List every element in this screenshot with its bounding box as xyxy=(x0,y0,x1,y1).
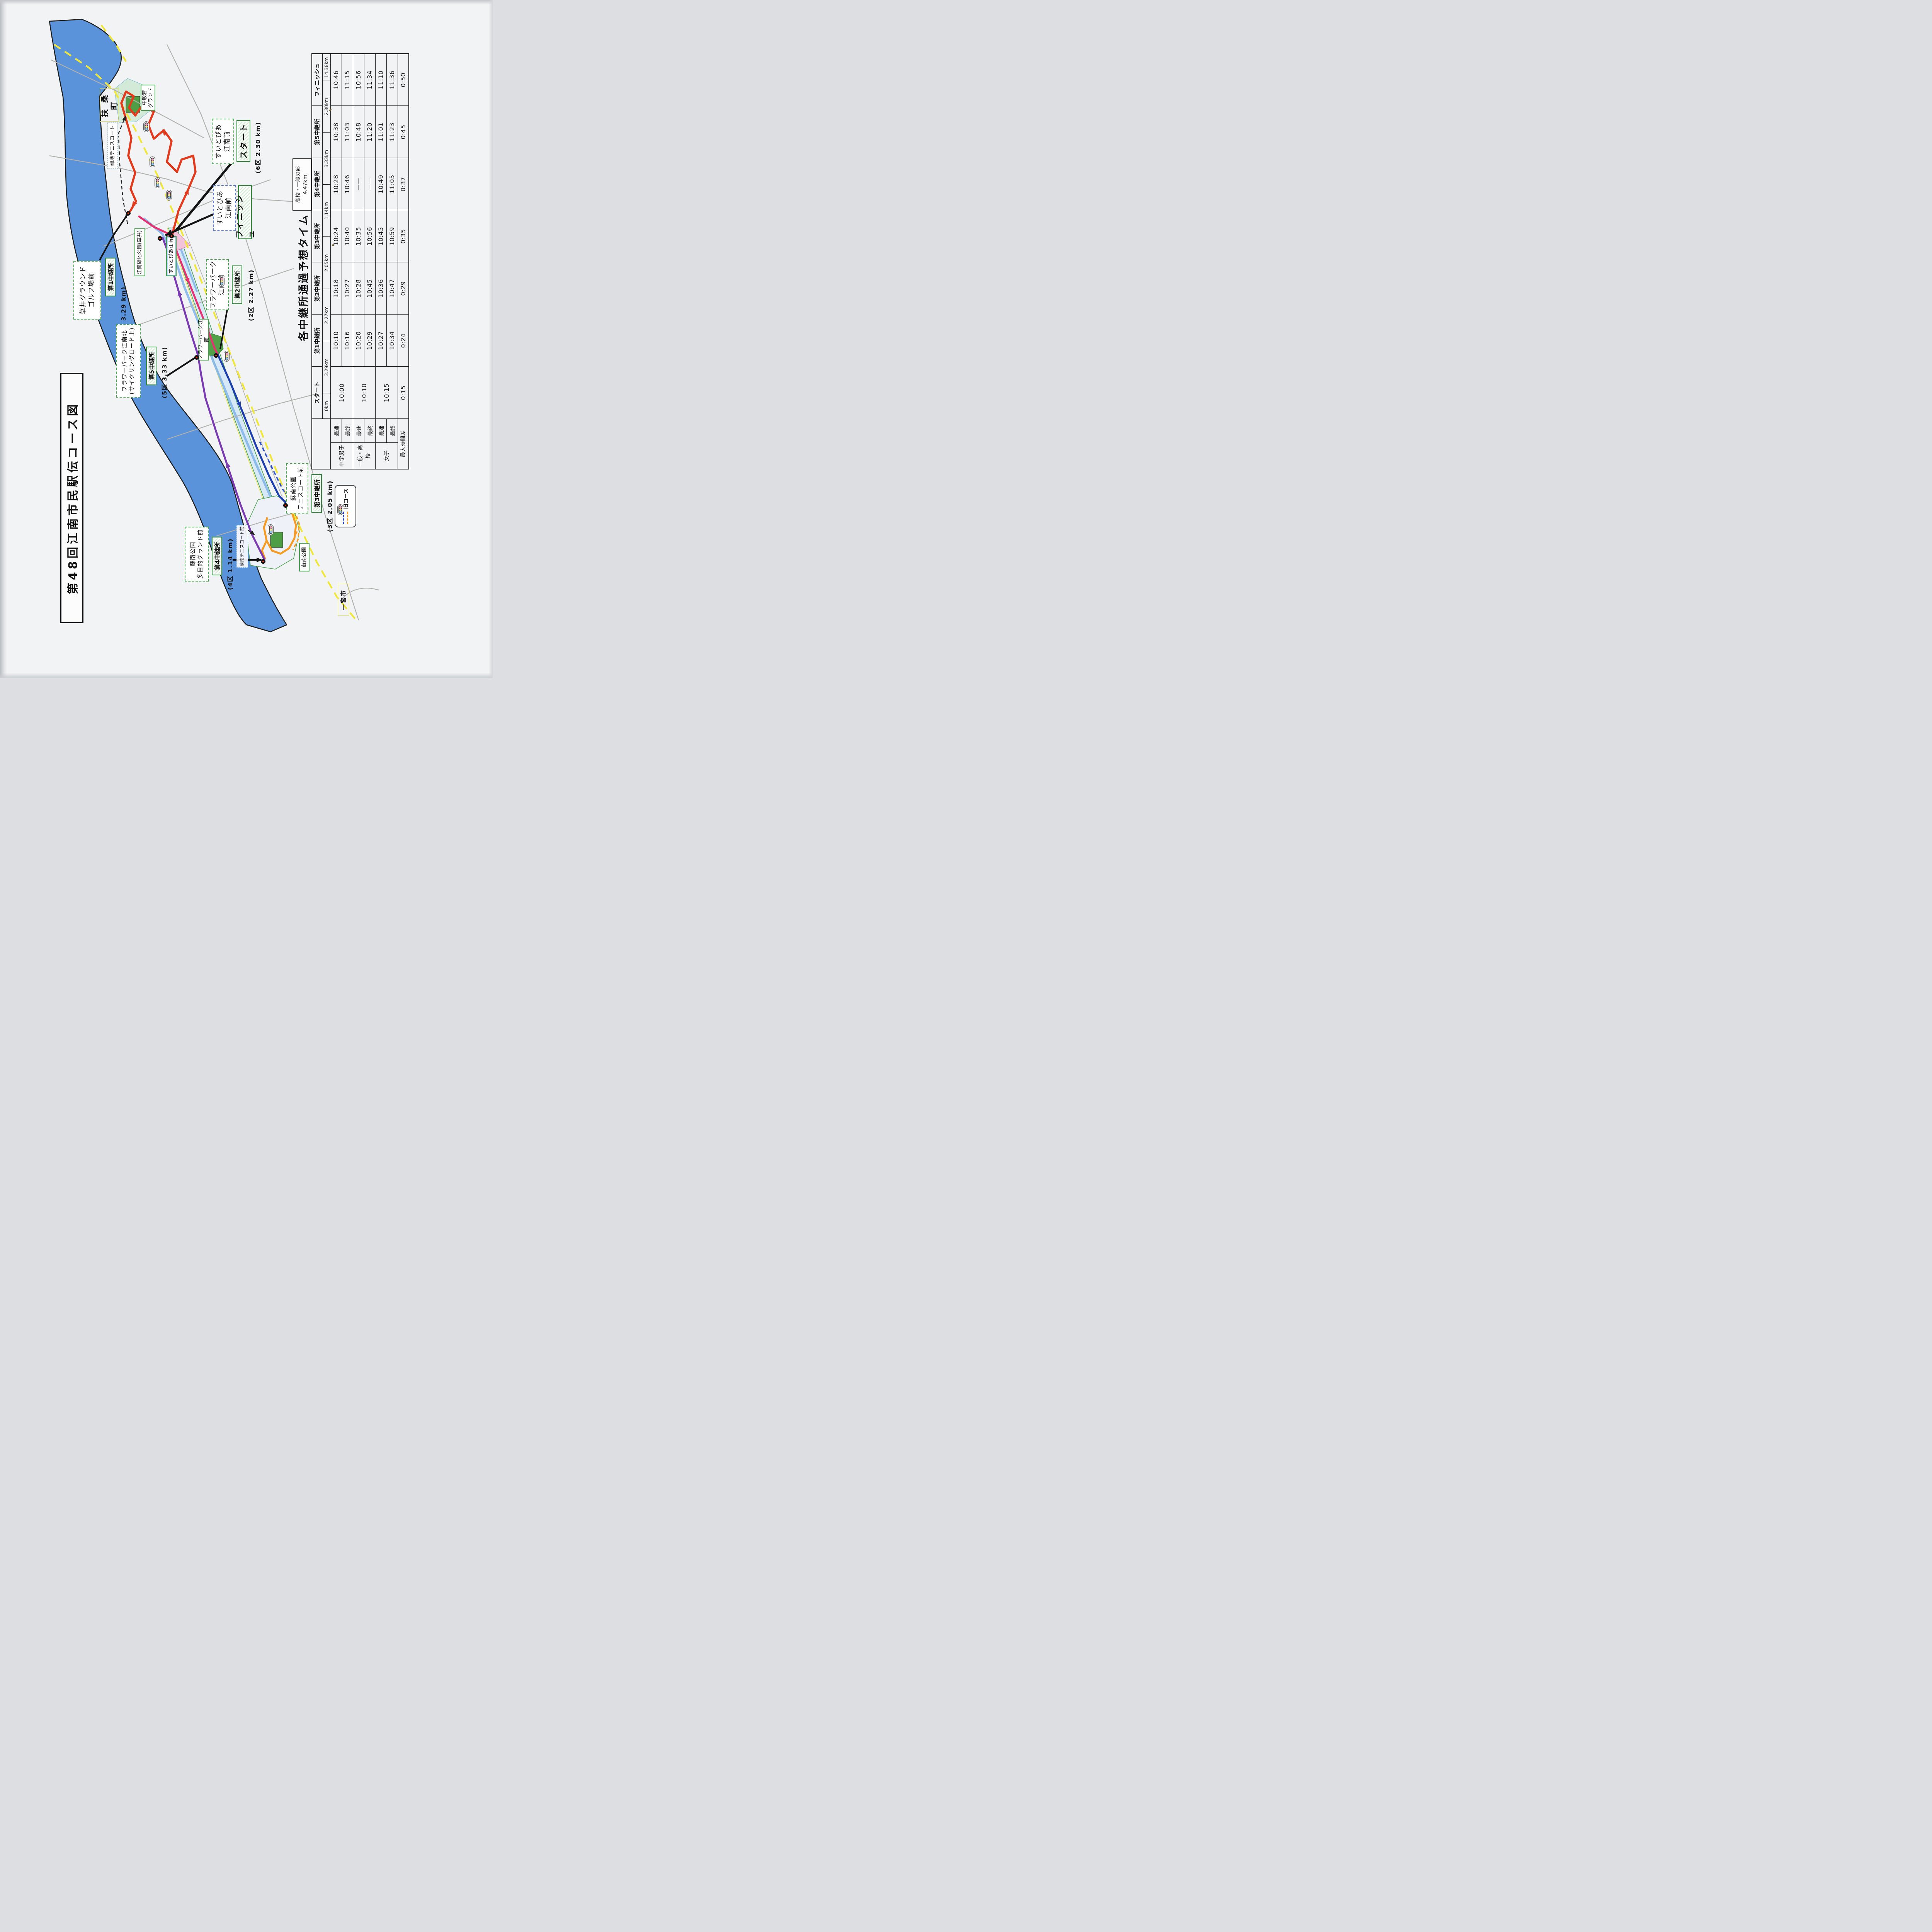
schedule-cell: 11:23 xyxy=(386,106,398,158)
callout-sonan3-place: 蘇南公園 テニスコート前 xyxy=(286,463,308,514)
schedule-cell: 10:29 xyxy=(364,315,375,367)
schedule-cell: 10:56 xyxy=(364,210,375,262)
start-time: 10:15 xyxy=(375,367,398,419)
schedule-cell: —— xyxy=(353,158,364,210)
schedule-cell: 10:24 xyxy=(330,210,342,262)
schedule-cell: 10:46 xyxy=(342,158,353,210)
schedule-cell: 10:20 xyxy=(353,315,364,367)
schedule-cell: 10:40 xyxy=(342,210,353,262)
schedule-cell: 0km3.29km2.27km2.05km1.14km3.33km2.30km1… xyxy=(322,54,330,419)
station-header: フィニッシュ xyxy=(312,54,322,106)
group-name: 女子 xyxy=(375,443,398,469)
leg-distance: 14.38km xyxy=(323,55,330,80)
leg-distance: 3.33km xyxy=(323,133,330,185)
schedule-cell: 0:35 xyxy=(398,210,409,262)
schedule-cell: 11:03 xyxy=(342,106,353,158)
schedule-cell: 10:36 xyxy=(375,262,386,315)
traffic-light-icon xyxy=(167,190,172,200)
old-course-label: 旧コース xyxy=(342,488,349,509)
schedule-cell: 10:27 xyxy=(375,315,386,367)
finish-point-marker xyxy=(158,236,162,241)
page-title: 第48回江南市民駅伝コース図 xyxy=(60,373,83,623)
schedule-cell: 10:18 xyxy=(330,262,342,315)
callout-kusai-place: 草井グラウンド ゴルフ場前 xyxy=(73,261,101,320)
start-time: 10:10 xyxy=(353,367,375,419)
schedule-cell: 0:37 xyxy=(398,158,409,210)
scanned-page: 第48回江南市民駅伝コース図 扶 桑 町 中般若 グランド 緑地テニスコート 江… xyxy=(0,0,493,678)
schedule-cell: 0:29 xyxy=(398,262,409,315)
callout-sonan3-leg: (3区 2.05 km) xyxy=(325,480,334,532)
schedule-cell: 11:20 xyxy=(364,106,375,158)
traffic-light-icon xyxy=(144,122,149,132)
callout-flower2-station: 第2中継所 xyxy=(232,265,242,304)
callout-start-place: すいとぴあ 江南前 xyxy=(212,119,234,164)
old-course-dash-samples xyxy=(343,512,348,524)
relay5-marker xyxy=(194,355,199,360)
schedule-cell: 10:38 xyxy=(330,106,342,158)
area-label-fuso: 扶 桑 町 xyxy=(100,88,119,122)
leg-distance: 2.30km xyxy=(323,80,330,133)
traffic-light-icon xyxy=(219,276,224,286)
start-point-marker xyxy=(169,234,174,238)
traffic-light-icon xyxy=(268,525,273,535)
station-header: 第4中継所 xyxy=(312,158,322,210)
schedule-cell: 11:05 xyxy=(386,158,398,210)
callout-kusai-station: 第1中継所 xyxy=(105,258,116,296)
callout-finish-place: すいとぴあ 江南前 xyxy=(213,185,236,231)
schedule-cell xyxy=(312,419,330,469)
area-label-suitopia: すいとぴあ江南 xyxy=(166,236,177,276)
callout-sonan4-leg: (4区 1.14 km) xyxy=(226,538,234,590)
schedule-cell: 最終 xyxy=(386,419,398,443)
relay2-marker xyxy=(214,353,218,358)
area-label-ichinomiya: 一宮市 xyxy=(338,584,349,616)
callout-start-station: スタート xyxy=(236,120,250,162)
schedule-cell: 最速 xyxy=(375,419,386,443)
schedule-cell: 10:45 xyxy=(364,262,375,315)
summary-label: 最大時間差 xyxy=(398,419,409,469)
group-name: 中学男子 xyxy=(330,443,353,469)
station-header: 第3中継所 xyxy=(312,210,322,262)
schedule-cell: 11:36 xyxy=(386,54,398,106)
area-label-ryokuchi-tennis: 緑地テニスコート xyxy=(107,122,118,169)
schedule-cell: —— xyxy=(364,158,375,210)
schedule-cell: 10:28 xyxy=(353,262,364,315)
page-title-text: 第48回江南市民駅伝コース図 xyxy=(63,402,80,594)
schedule-cell: 0:45 xyxy=(398,106,409,158)
division-note: 高校・一般の部 4.47km xyxy=(293,158,311,211)
start-time: 10:00 xyxy=(330,367,353,419)
schedule-cell: 10:48 xyxy=(353,106,364,158)
leg-distance: 0km xyxy=(323,393,330,419)
schedule-cell: 11:15 xyxy=(342,54,353,106)
callout-flower5-place: フラワーパーク江南北 (サイクリングロード上) xyxy=(116,324,141,398)
schedule-cell: 10:56 xyxy=(353,54,364,106)
schedule-cell: 最終 xyxy=(342,419,353,443)
area-label-sonan-park: 蘇南公園 xyxy=(299,543,310,571)
schedule-cell: 10:27 xyxy=(342,262,353,315)
traffic-light-icon xyxy=(155,178,160,188)
schedule-cell: 10:34 xyxy=(386,315,398,367)
schedule-cell: 10:35 xyxy=(353,210,364,262)
area-label-flower-park: フラワーパーク江南 xyxy=(199,319,209,361)
station-header: 第5中継所 xyxy=(312,106,322,158)
callout-sonan4-station: 第4中継所 xyxy=(212,537,222,575)
schedule-cell: 10:46 xyxy=(330,54,342,106)
old-course-orange-dash xyxy=(347,512,348,524)
callout-flower2-leg: (2区 2.27 km) xyxy=(247,269,255,321)
schedule-cell: 10:47 xyxy=(386,262,398,315)
schedule-cell: 0:15 xyxy=(398,367,409,419)
leg-distance: 2.27km xyxy=(323,289,330,341)
relay1-marker xyxy=(126,211,131,216)
group-name: 一般・高校 xyxy=(353,443,375,469)
schedule-cell: 0:24 xyxy=(398,315,409,367)
landscape-content: 第48回江南市民駅伝コース図 扶 桑 町 中般若 グランド 緑地テニスコート 江… xyxy=(0,0,493,678)
relay4-marker xyxy=(261,559,265,564)
relay3-marker xyxy=(283,503,288,508)
schedule-cell: 10:28 xyxy=(330,158,342,210)
schedule-cell: 最終 xyxy=(364,419,375,443)
schedule-cell: 11:34 xyxy=(364,54,375,106)
leg-distance: 2.05km xyxy=(323,237,330,289)
area-label-nakahannya: 中般若 グランド xyxy=(141,85,155,111)
schedule-cell: 10:16 xyxy=(342,315,353,367)
schedule-cell: 0:50 xyxy=(398,54,409,106)
schedule-cell: 最速 xyxy=(330,419,342,443)
traffic-light-icon xyxy=(338,505,343,515)
area-label-sonan-tennis: 蘇南テニスコート前 xyxy=(236,525,248,568)
schedule-cell: 最速 xyxy=(353,419,364,443)
schedule-cell: 10:10 xyxy=(330,315,342,367)
station-header: 第1中継所 xyxy=(312,315,322,367)
schedule-cell: 11:01 xyxy=(375,106,386,158)
schedule-title: 各中継所通過予想タイム xyxy=(295,214,310,341)
schedule-cell: 11:10 xyxy=(375,54,386,106)
leg-distance: 3.29km xyxy=(323,341,330,393)
callout-sonan3-station: 第3中継所 xyxy=(311,474,322,513)
callout-start-leg: (6区 2.30 km) xyxy=(253,122,262,173)
schedule-table: スタート第1中継所第2中継所第3中継所第4中継所第5中継所フィニッシュ0km3.… xyxy=(311,53,409,469)
area-label-konan-ryokuchi: 江南緑地公園(草井) xyxy=(134,228,145,276)
traffic-light-icon xyxy=(150,157,155,167)
station-header: スタート xyxy=(312,367,322,419)
schedule-cell: 10:45 xyxy=(375,210,386,262)
schedule-cell: 10:59 xyxy=(386,210,398,262)
division-note-distance: 4.47km xyxy=(302,175,309,194)
old-course-blue-dash xyxy=(343,512,344,524)
division-note-label: 高校・一般の部 xyxy=(295,166,302,203)
callout-sonan4-place: 蘇南公園 多目的グランド前 xyxy=(185,527,209,582)
leg-distance: 1.14km xyxy=(323,185,330,237)
sonan-ground-field xyxy=(270,532,283,548)
callout-flower5-station: 第5中継所 xyxy=(146,347,156,385)
station-header: 第2中継所 xyxy=(312,262,322,315)
schedule-cell: 10:49 xyxy=(375,158,386,210)
traffic-light-icon xyxy=(224,351,229,361)
callout-finish-station: フィニッシュ xyxy=(238,185,252,239)
ink-speck xyxy=(332,244,334,246)
callout-flower5-leg: (5区 3.33 km) xyxy=(160,347,168,398)
callout-flower2-place: フラワーパーク 江南前 xyxy=(206,259,229,310)
